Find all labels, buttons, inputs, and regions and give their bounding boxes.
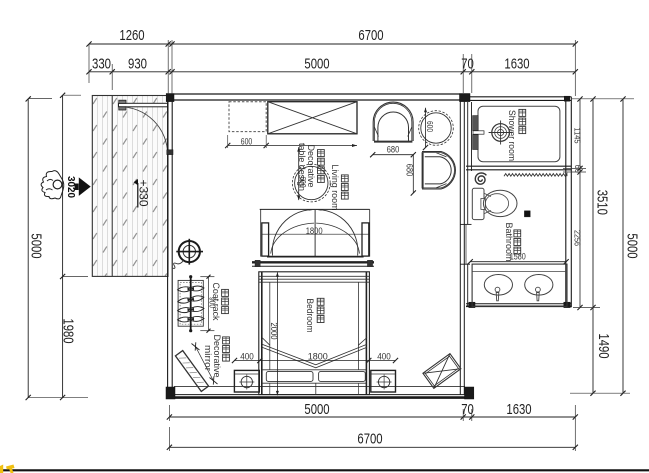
svg-text:mirror: mirror	[203, 345, 213, 371]
svg-text:5000: 5000	[304, 401, 329, 418]
svg-text:3510: 3510	[594, 190, 611, 215]
svg-text:400: 400	[240, 351, 254, 361]
svg-text:6700: 6700	[357, 430, 382, 447]
svg-text:5000: 5000	[28, 233, 45, 258]
svg-text:600: 600	[298, 177, 308, 188]
svg-text:2256: 2256	[573, 230, 583, 246]
svg-text:1980: 1980	[60, 318, 77, 343]
svg-text:1490: 1490	[595, 333, 612, 358]
svg-text:680: 680	[404, 164, 414, 177]
svg-text:1630: 1630	[504, 56, 529, 73]
svg-text:1800: 1800	[308, 351, 328, 361]
svg-text:1145: 1145	[573, 128, 583, 144]
svg-text:5000: 5000	[624, 233, 641, 258]
svg-text:1260: 1260	[119, 27, 144, 44]
svg-text:1630: 1630	[506, 401, 531, 418]
svg-text:930: 930	[128, 56, 147, 73]
svg-text:6700: 6700	[358, 27, 383, 44]
svg-text:330: 330	[92, 56, 111, 73]
svg-text:2000: 2000	[269, 323, 279, 340]
svg-text:3020: 3020	[65, 176, 76, 198]
svg-text:5000: 5000	[304, 56, 329, 73]
svg-text:680: 680	[387, 145, 400, 155]
svg-text:1580: 1580	[510, 252, 526, 262]
svg-text:600: 600	[241, 136, 253, 146]
svg-text:Shower room: Shower room	[507, 110, 517, 161]
svg-text:400: 400	[377, 351, 391, 361]
svg-text:+330: +330	[137, 180, 151, 207]
svg-text:Coat rack: Coat rack	[211, 283, 221, 322]
svg-text:1800: 1800	[306, 226, 323, 236]
svg-text:600: 600	[425, 121, 435, 132]
svg-text:Living room: Living room	[330, 165, 340, 211]
svg-text:Bedroom: Bedroom	[305, 299, 315, 333]
